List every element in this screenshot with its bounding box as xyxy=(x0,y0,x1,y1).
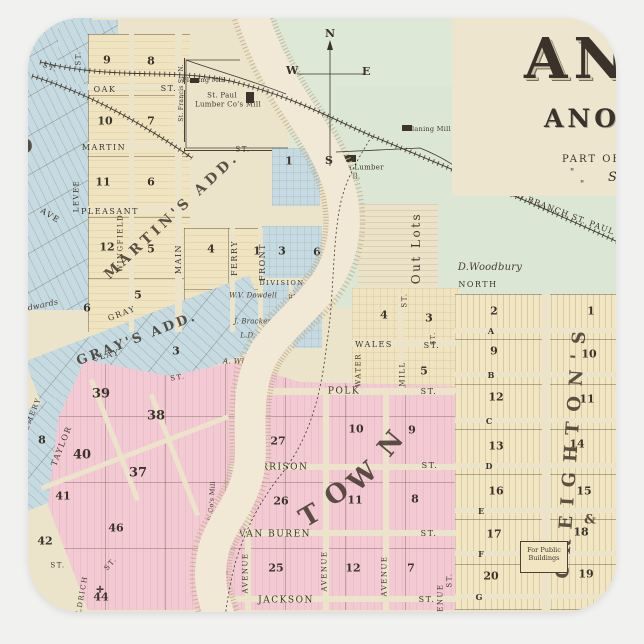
public-buildings-box: For Public Buildings xyxy=(520,541,568,573)
map-title-block: AN ANOKA CO M PART OF SEC " " " " " Scal… xyxy=(452,18,616,196)
public-buildings-line1: For Public xyxy=(521,546,567,554)
map-scale-label: Scale xyxy=(608,170,616,185)
compass-w: W xyxy=(286,64,298,77)
page: { "product": {"background_color": "#f1f1… xyxy=(0,0,644,644)
compass-n: N xyxy=(325,27,335,40)
map-subtitle: PART OF SEC xyxy=(562,154,616,165)
map-masthead: AN xyxy=(524,26,616,92)
map-county-title: ANOKA CO xyxy=(544,104,616,133)
compass-e: E xyxy=(362,65,370,78)
compass-s: S xyxy=(325,154,333,167)
map-sticker: OAKST.MARTINPLEASANTGRAYCLAYST.DIVISIONS… xyxy=(28,18,616,612)
public-buildings-line2: Buildings xyxy=(521,554,567,562)
